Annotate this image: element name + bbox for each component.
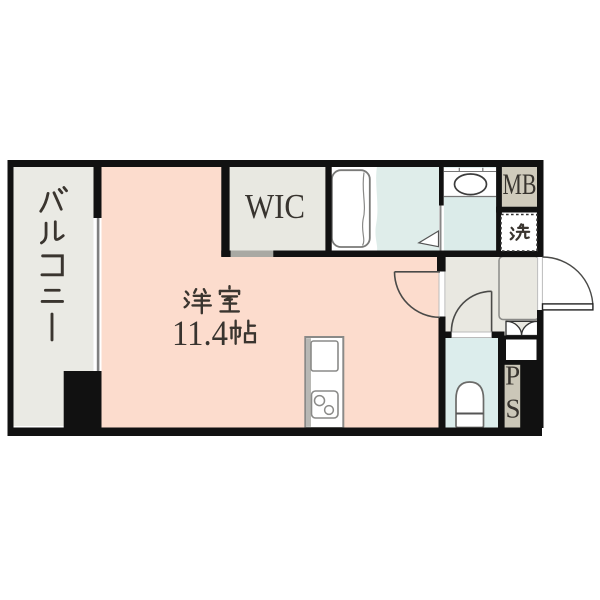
svg-text:MB: MB — [503, 168, 537, 201]
svg-text:S: S — [505, 394, 520, 424]
svg-text:11.4: 11.4 — [172, 313, 228, 353]
svg-text:P: P — [505, 361, 520, 391]
svg-text:WIC: WIC — [245, 187, 305, 226]
